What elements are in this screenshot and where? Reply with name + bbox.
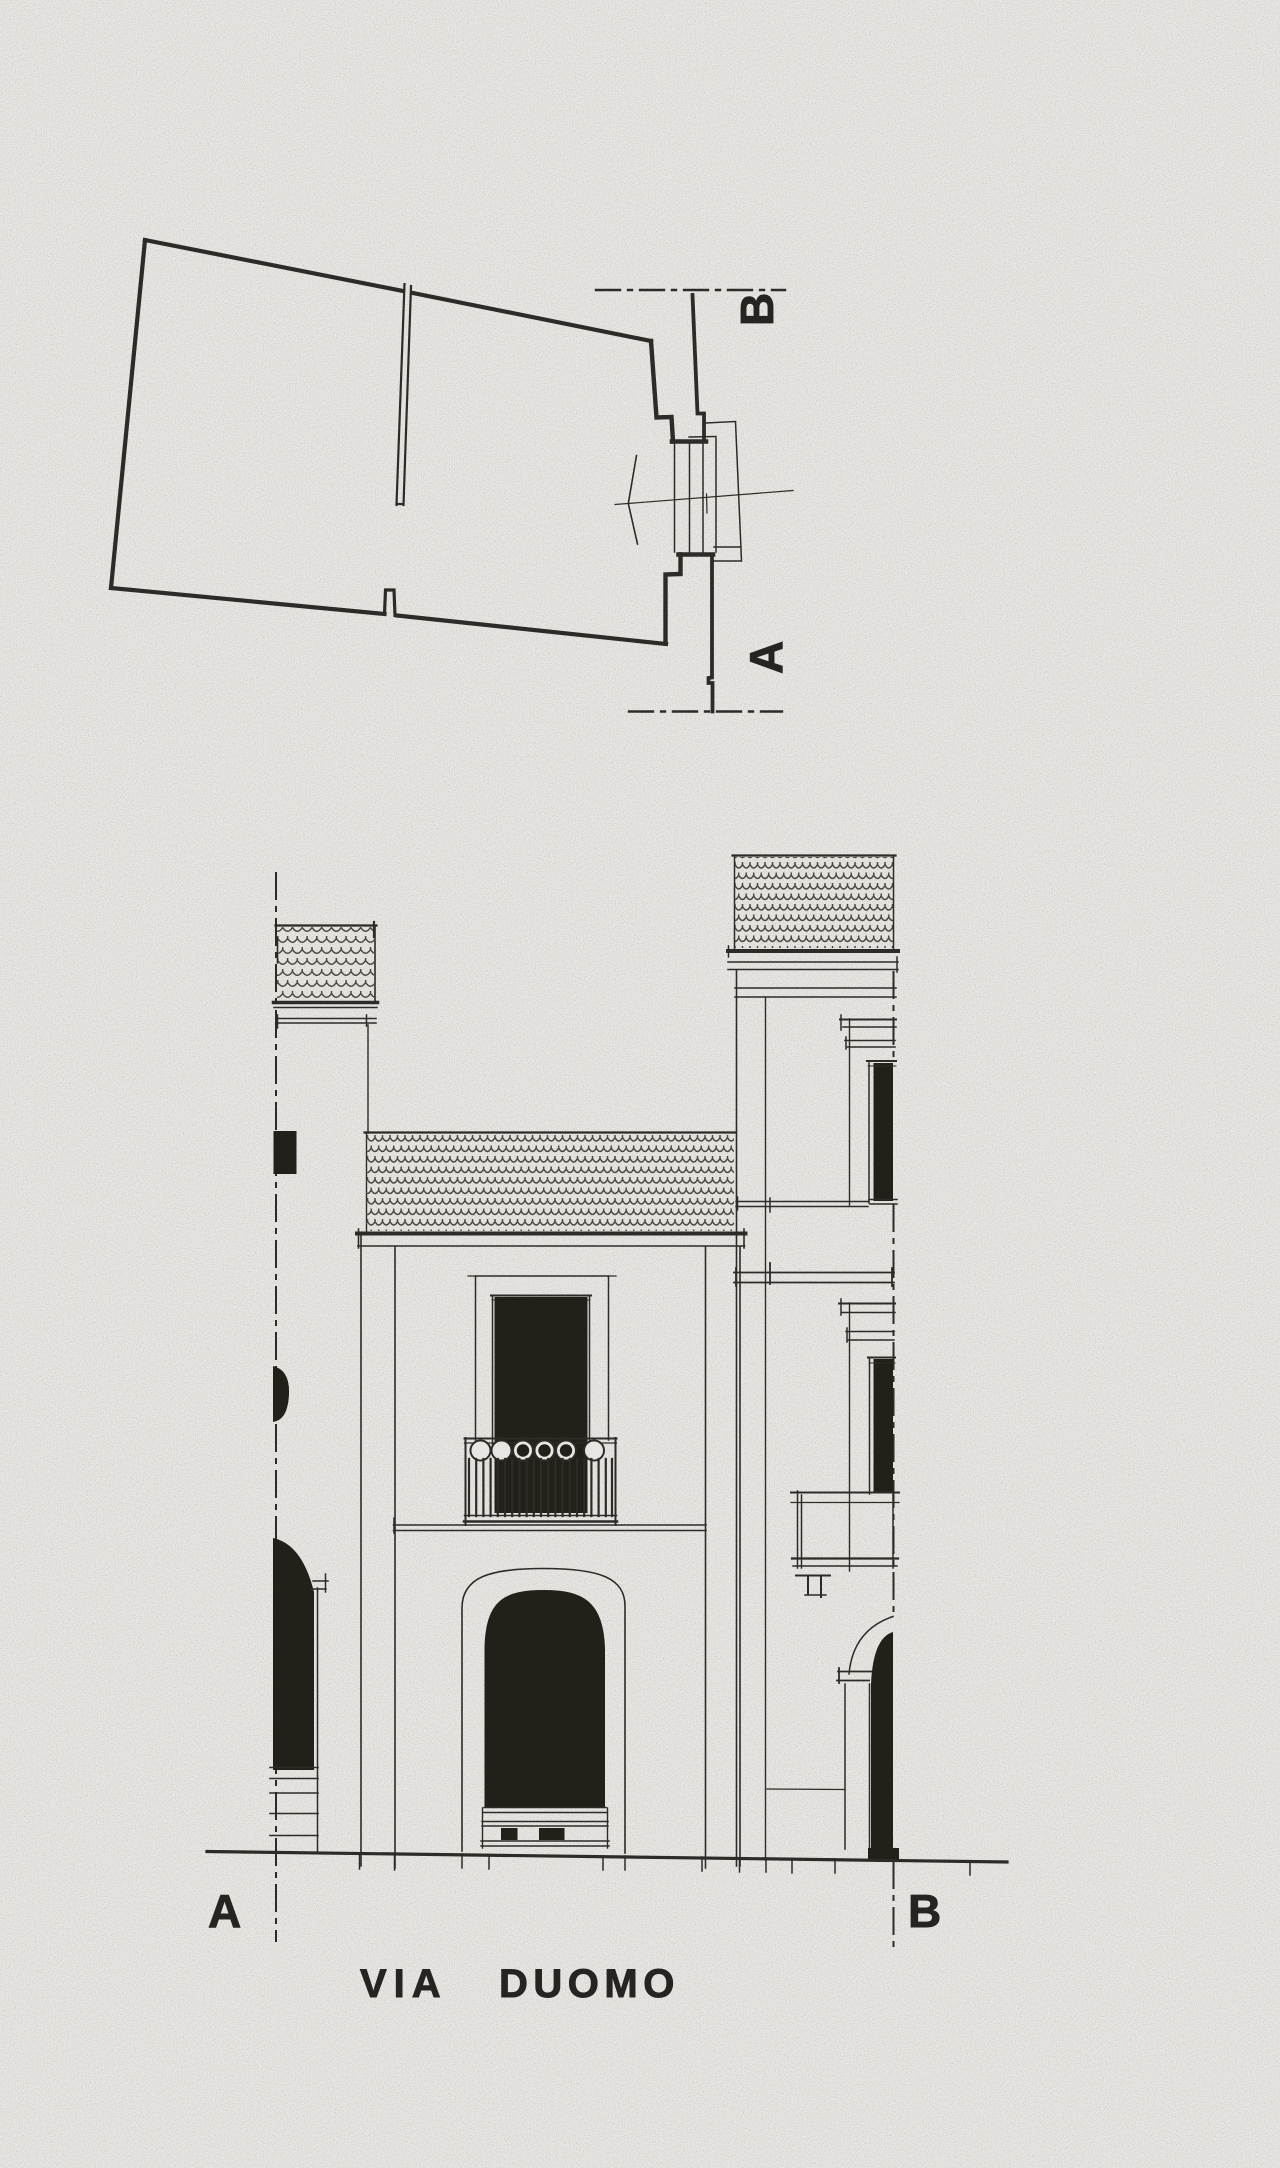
svg-text:A: A <box>208 1885 241 1937</box>
svg-text:B: B <box>731 293 783 326</box>
svg-text:VIA: VIA <box>360 1962 448 2006</box>
svg-text:DUOMO: DUOMO <box>499 1962 680 2006</box>
svg-text:A: A <box>740 641 792 674</box>
svg-text:B: B <box>908 1885 941 1937</box>
